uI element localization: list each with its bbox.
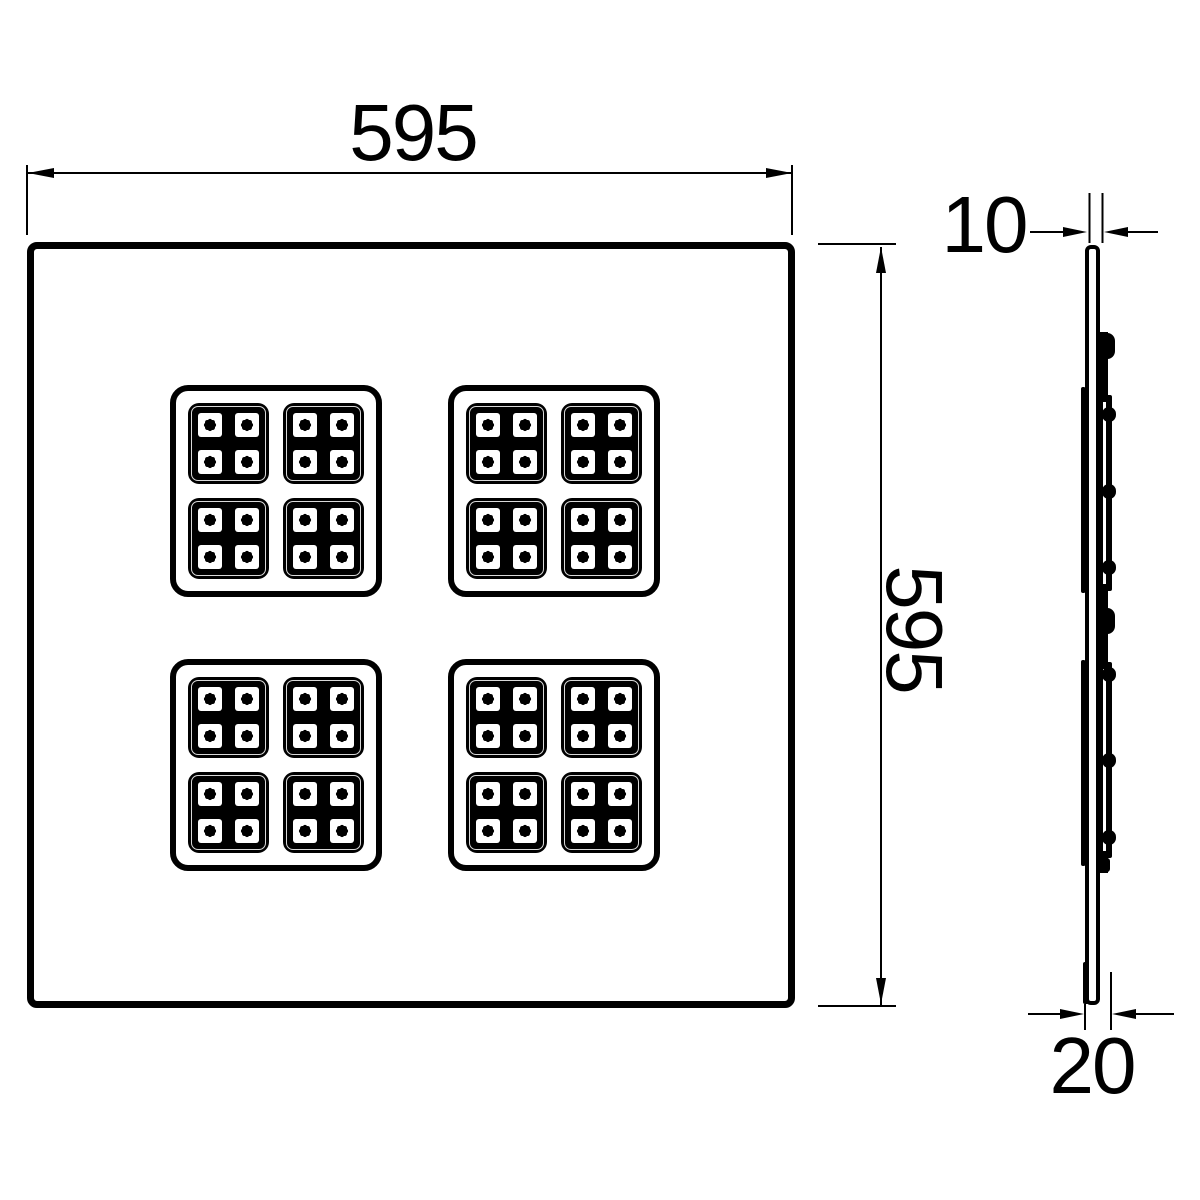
led-cell bbox=[571, 782, 595, 806]
led-cell bbox=[608, 819, 632, 843]
width-arrow-right-icon bbox=[766, 168, 792, 178]
led-cell bbox=[571, 545, 595, 569]
led-chip-icon bbox=[334, 549, 350, 565]
led-cell bbox=[513, 450, 537, 474]
led-cell bbox=[513, 687, 537, 711]
led-cell bbox=[476, 450, 500, 474]
led-cell bbox=[608, 782, 632, 806]
height-dimension-label: 595 bbox=[874, 565, 954, 692]
led-chip-icon bbox=[202, 823, 218, 839]
led-chip-icon bbox=[297, 786, 313, 802]
led-chip-icon bbox=[334, 786, 350, 802]
led-chip-icon bbox=[297, 512, 313, 528]
led-chip-icon bbox=[334, 417, 350, 433]
led-cell bbox=[330, 724, 354, 748]
width-dimension-label: 595 bbox=[349, 93, 476, 173]
led-chip-icon bbox=[575, 454, 591, 470]
led-module bbox=[188, 772, 269, 853]
led-chip-icon bbox=[517, 512, 533, 528]
led-cell bbox=[235, 687, 259, 711]
led-cell bbox=[513, 724, 537, 748]
led-cell bbox=[293, 545, 317, 569]
led-chip-icon bbox=[517, 728, 533, 744]
width-arrow-left-icon bbox=[28, 168, 54, 178]
led-chip-icon bbox=[297, 454, 313, 470]
height-arrow-down-icon bbox=[876, 978, 886, 1004]
led-cell bbox=[330, 545, 354, 569]
led-cell bbox=[330, 687, 354, 711]
height-arrow-up-icon bbox=[876, 247, 886, 273]
led-cell bbox=[476, 413, 500, 437]
led-module bbox=[561, 498, 642, 579]
led-cell bbox=[198, 545, 222, 569]
led-module bbox=[188, 677, 269, 758]
led-chip-icon bbox=[612, 549, 628, 565]
led-module bbox=[188, 498, 269, 579]
led-chip-icon bbox=[517, 691, 533, 707]
led-chip-icon bbox=[480, 823, 496, 839]
led-cell bbox=[293, 413, 317, 437]
led-chip-icon bbox=[575, 417, 591, 433]
led-cell bbox=[198, 508, 222, 532]
depth-dimension-label: 20 bbox=[1050, 1026, 1135, 1106]
led-chip-icon bbox=[202, 786, 218, 802]
height-extension-line-bottom bbox=[818, 1005, 896, 1007]
side-view-profile bbox=[1020, 180, 1190, 1050]
led-chip-icon bbox=[297, 549, 313, 565]
led-cell bbox=[330, 450, 354, 474]
led-chip-icon bbox=[480, 512, 496, 528]
led-chip-icon bbox=[575, 823, 591, 839]
led-cell bbox=[198, 819, 222, 843]
led-cell bbox=[330, 819, 354, 843]
led-chip-icon bbox=[202, 417, 218, 433]
led-cell bbox=[571, 819, 595, 843]
led-chip-icon bbox=[202, 512, 218, 528]
led-cell bbox=[293, 450, 317, 474]
led-cell bbox=[571, 413, 595, 437]
led-chip-icon bbox=[517, 417, 533, 433]
led-cell bbox=[608, 413, 632, 437]
led-module bbox=[283, 403, 364, 484]
led-chip-icon bbox=[612, 823, 628, 839]
led-cell bbox=[198, 687, 222, 711]
led-cell bbox=[476, 724, 500, 748]
led-cluster bbox=[448, 659, 660, 871]
led-module bbox=[466, 498, 547, 579]
led-cluster bbox=[170, 659, 382, 871]
led-chip-icon bbox=[480, 691, 496, 707]
led-chip-icon bbox=[202, 728, 218, 744]
led-cell bbox=[571, 724, 595, 748]
led-chip-icon bbox=[297, 417, 313, 433]
led-cluster bbox=[170, 385, 382, 597]
led-module bbox=[561, 677, 642, 758]
led-cell bbox=[513, 782, 537, 806]
led-cell bbox=[476, 819, 500, 843]
led-module bbox=[466, 677, 547, 758]
led-cell bbox=[293, 724, 317, 748]
technical-drawing-canvas: 595 595 bbox=[0, 0, 1200, 1200]
led-chip-icon bbox=[297, 823, 313, 839]
led-cell bbox=[293, 508, 317, 532]
led-cell bbox=[330, 413, 354, 437]
led-chip-icon bbox=[480, 728, 496, 744]
led-module bbox=[466, 772, 547, 853]
led-chip-icon bbox=[297, 691, 313, 707]
led-cell bbox=[608, 508, 632, 532]
led-module bbox=[283, 498, 364, 579]
led-chip-icon bbox=[297, 728, 313, 744]
thickness-dimension-label: 10 bbox=[942, 185, 1027, 265]
led-cell bbox=[513, 545, 537, 569]
led-cell bbox=[513, 413, 537, 437]
led-chip-icon bbox=[612, 454, 628, 470]
led-cell bbox=[476, 508, 500, 532]
led-cell bbox=[476, 545, 500, 569]
led-chip-icon bbox=[334, 512, 350, 528]
led-cell bbox=[513, 819, 537, 843]
led-cell bbox=[235, 819, 259, 843]
led-chip-icon bbox=[517, 786, 533, 802]
led-cell bbox=[235, 545, 259, 569]
led-cell bbox=[198, 724, 222, 748]
led-chip-icon bbox=[612, 691, 628, 707]
led-chip-icon bbox=[612, 512, 628, 528]
height-extension-line-top bbox=[818, 243, 896, 245]
led-cell bbox=[476, 782, 500, 806]
led-cell bbox=[513, 508, 537, 532]
led-cell bbox=[235, 782, 259, 806]
led-module bbox=[561, 772, 642, 853]
led-cell bbox=[293, 782, 317, 806]
led-cell bbox=[235, 508, 259, 532]
led-chip-icon bbox=[239, 417, 255, 433]
led-chip-icon bbox=[239, 728, 255, 744]
led-cluster bbox=[448, 385, 660, 597]
led-cell bbox=[235, 450, 259, 474]
led-cell bbox=[608, 545, 632, 569]
led-cell bbox=[198, 413, 222, 437]
led-chip-icon bbox=[575, 786, 591, 802]
led-chip-icon bbox=[202, 691, 218, 707]
led-cell bbox=[571, 508, 595, 532]
led-module bbox=[283, 677, 364, 758]
led-cell bbox=[476, 687, 500, 711]
led-module bbox=[188, 403, 269, 484]
led-chip-icon bbox=[239, 512, 255, 528]
led-chip-icon bbox=[517, 454, 533, 470]
led-chip-icon bbox=[239, 786, 255, 802]
led-cell bbox=[571, 687, 595, 711]
led-chip-icon bbox=[480, 549, 496, 565]
led-module bbox=[466, 403, 547, 484]
led-chip-icon bbox=[575, 728, 591, 744]
led-chip-icon bbox=[239, 454, 255, 470]
led-cell bbox=[330, 782, 354, 806]
led-cell bbox=[608, 724, 632, 748]
led-module bbox=[283, 772, 364, 853]
led-chip-icon bbox=[612, 728, 628, 744]
led-chip-icon bbox=[334, 454, 350, 470]
led-chip-icon bbox=[239, 549, 255, 565]
led-chip-icon bbox=[334, 691, 350, 707]
led-chip-icon bbox=[480, 454, 496, 470]
led-module bbox=[561, 403, 642, 484]
led-chip-icon bbox=[334, 728, 350, 744]
led-cell bbox=[293, 687, 317, 711]
led-chip-icon bbox=[575, 549, 591, 565]
led-cell bbox=[330, 508, 354, 532]
led-chip-icon bbox=[612, 786, 628, 802]
front-view-panel bbox=[27, 242, 795, 1008]
led-cell bbox=[608, 450, 632, 474]
led-chip-icon bbox=[239, 823, 255, 839]
led-chip-icon bbox=[480, 786, 496, 802]
led-cell bbox=[198, 782, 222, 806]
led-chip-icon bbox=[334, 823, 350, 839]
led-chip-icon bbox=[575, 691, 591, 707]
led-chip-icon bbox=[239, 691, 255, 707]
led-cell bbox=[235, 724, 259, 748]
led-chip-icon bbox=[202, 454, 218, 470]
led-cell bbox=[608, 687, 632, 711]
led-cell bbox=[293, 819, 317, 843]
led-chip-icon bbox=[202, 549, 218, 565]
led-chip-icon bbox=[480, 417, 496, 433]
led-cell bbox=[235, 413, 259, 437]
led-chip-icon bbox=[575, 512, 591, 528]
led-chip-icon bbox=[517, 549, 533, 565]
led-chip-icon bbox=[612, 417, 628, 433]
led-chip-icon bbox=[517, 823, 533, 839]
led-cell bbox=[571, 450, 595, 474]
led-cell bbox=[198, 450, 222, 474]
